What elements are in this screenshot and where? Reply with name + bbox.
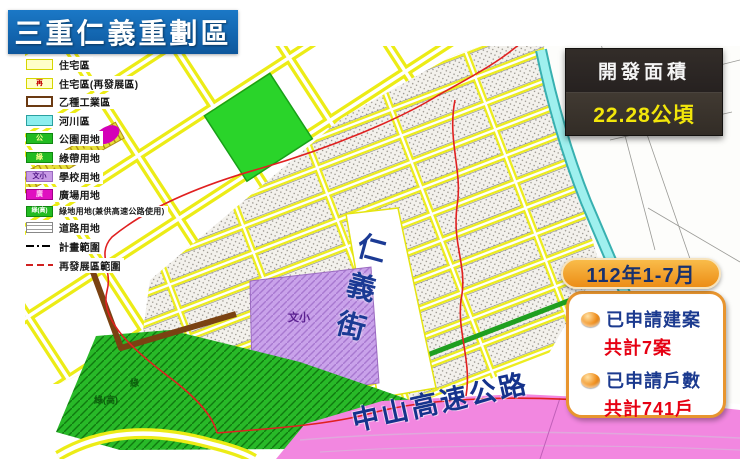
- plan-boundary-swatch: [26, 241, 53, 252]
- slide: 文小 綠(高) 綠 仁義: [0, 0, 740, 459]
- legend-item-plan-boundary: 計畫範圍: [26, 239, 103, 254]
- legend-item-residential: 住宅區: [26, 57, 93, 72]
- legend-item-road: 道路用地: [26, 220, 103, 235]
- legend-item-industrial: 乙種工業區: [26, 94, 114, 109]
- industrial-swatch: [26, 96, 53, 107]
- legend-item-school: 文小 學校用地: [26, 169, 103, 184]
- period-badge: 112年1-7月: [561, 258, 721, 289]
- development-area-title: 開發面積: [566, 49, 722, 93]
- green-highway-swatch: 綠(高): [26, 206, 53, 217]
- river-swatch: [26, 115, 53, 126]
- greenbelt-swatch: 綠: [26, 152, 53, 163]
- bullet-ball-icon: [581, 373, 600, 388]
- page-title: 三重仁義重劃區: [14, 12, 231, 52]
- school-swatch: 文小: [26, 171, 53, 182]
- school-map-label: 文小: [288, 310, 310, 324]
- green-highway-map-label: 綠(高): [94, 394, 118, 405]
- legend-item-greenbelt: 綠 綠帶用地: [26, 150, 103, 165]
- residential-redev-swatch: 再: [26, 78, 53, 89]
- legend-item-river: 河川區: [26, 113, 93, 128]
- stat-item-households: 已申請戶數: [581, 367, 723, 393]
- stat-value-households: 共計741戶: [604, 395, 723, 421]
- green-map-label: 綠: [130, 377, 140, 388]
- stat-item-cases: 已申請建案: [581, 306, 723, 332]
- legend-item-park: 公 公園用地: [26, 131, 103, 146]
- legend-item-plaza: 廣 廣場用地: [26, 187, 103, 202]
- legend-item-redev-boundary: 再發展區範圍: [26, 258, 124, 273]
- legend-item-residential-redev: 再 住宅區(再發展區): [26, 76, 141, 91]
- development-area-value: 22.28公頃: [566, 93, 722, 136]
- stat-value-cases: 共計7案: [604, 334, 723, 360]
- park-swatch: 公: [26, 133, 53, 144]
- development-area-box: 開發面積 22.28公頃: [565, 48, 723, 136]
- redev-boundary-swatch: [26, 260, 53, 271]
- application-stats-card: 已申請建案 共計7案 已申請戶數 共計741戶: [566, 291, 726, 418]
- map-legend: 住宅區 再 住宅區(再發展區) 乙種工業區 河川區 公 公園用地 綠 綠帶用地 …: [26, 57, 168, 276]
- bullet-ball-icon: [581, 312, 600, 327]
- plaza-swatch: 廣: [26, 189, 53, 200]
- road-swatch: [26, 222, 53, 233]
- legend-item-green-highway: 綠(高) 綠地用地(兼供高速公路使用): [26, 206, 168, 217]
- title-banner: 三重仁義重劃區: [8, 10, 238, 54]
- residential-swatch: [26, 59, 53, 70]
- left-margin: [0, 0, 25, 459]
